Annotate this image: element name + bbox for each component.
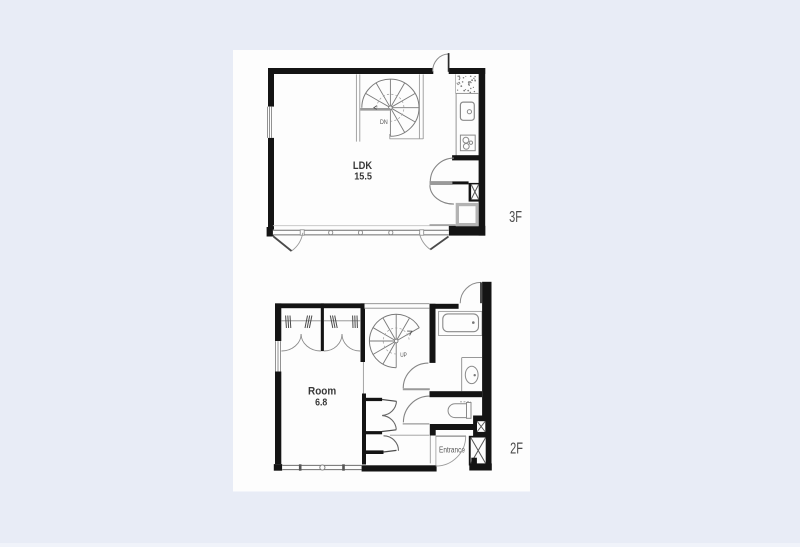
svg-text:Room: Room — [308, 385, 336, 398]
svg-text:Entrance: Entrance — [439, 445, 465, 455]
svg-text:15.5: 15.5 — [354, 171, 372, 183]
svg-text:2F: 2F — [510, 440, 523, 457]
svg-text:DN: DN — [380, 120, 388, 126]
svg-text:3F: 3F — [509, 208, 522, 225]
svg-text:6.8: 6.8 — [315, 397, 328, 409]
svg-text:UP: UP — [400, 352, 407, 359]
